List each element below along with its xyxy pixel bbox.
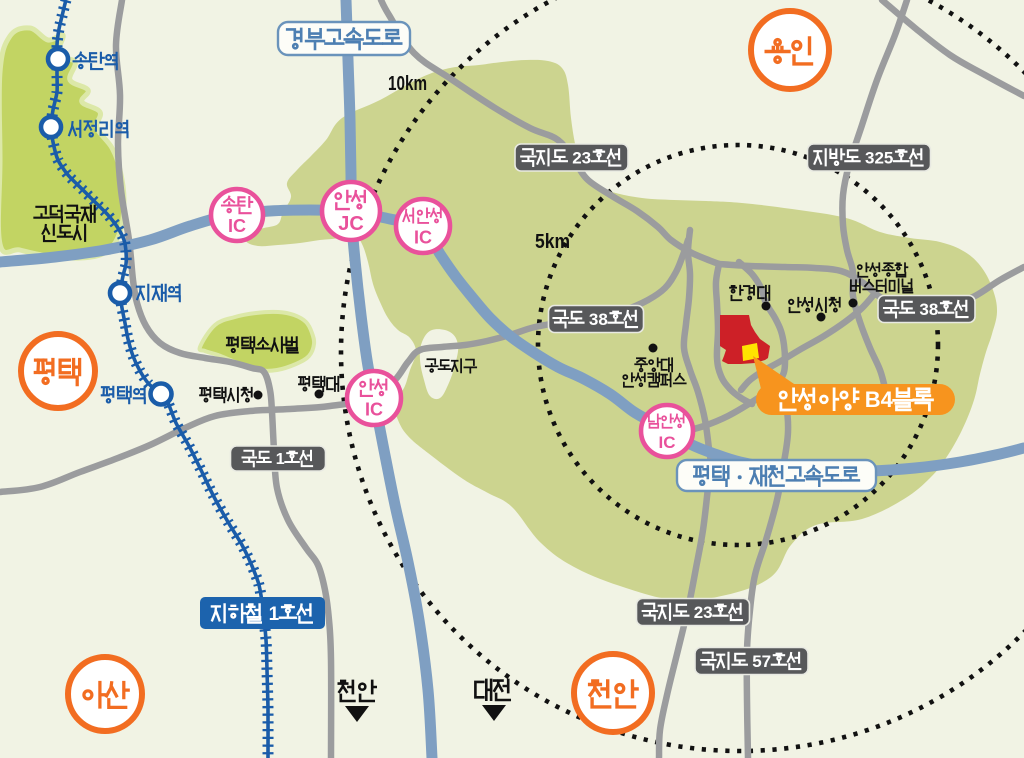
svg-text:23: 23 (694, 603, 713, 622)
svg-text:57: 57 (752, 652, 771, 671)
svg-text:JC: JC (338, 213, 364, 235)
svg-text:IC: IC (659, 433, 676, 452)
svg-text:1: 1 (276, 451, 285, 468)
svg-text:38: 38 (919, 300, 938, 319)
svg-text:IC: IC (228, 216, 246, 236)
svg-text:38: 38 (589, 310, 608, 329)
svg-text:1: 1 (269, 604, 280, 625)
svg-text:IC: IC (365, 400, 383, 420)
svg-text:B4: B4 (865, 387, 894, 412)
svg-text:23: 23 (572, 149, 591, 168)
svg-text:5km: 5km (535, 231, 570, 253)
svg-text:10km: 10km (388, 73, 427, 95)
svg-text:325: 325 (865, 149, 893, 168)
svg-text:IC: IC (414, 228, 432, 248)
